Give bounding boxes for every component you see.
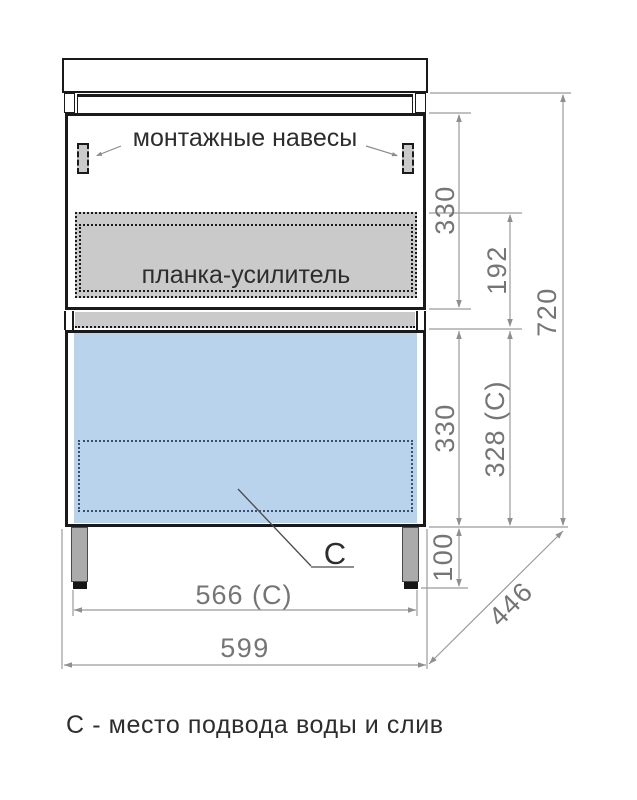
dim-overall-height: 720 bbox=[533, 242, 561, 382]
dimension-overlay bbox=[0, 0, 637, 800]
dim-plank-zone-height: 192 bbox=[483, 200, 511, 340]
dim-overall-width: 599 bbox=[165, 633, 325, 664]
vanity-dimension-diagram: монтажные навесы планка-усилитель С С - … bbox=[0, 0, 637, 800]
dim-lower-section-height-c: 328 (С) bbox=[481, 359, 509, 499]
legend-caption: С - место подвода воды и слив bbox=[66, 711, 444, 740]
connection-marker-label: С bbox=[312, 536, 358, 572]
reinforcement-plank-label: планка-усилитель bbox=[126, 261, 366, 290]
dim-connection-width-c: 566 (С) bbox=[144, 580, 344, 611]
dim-upper-section-height: 330 bbox=[431, 140, 459, 280]
mounting-brackets-label: монтажные навесы bbox=[120, 124, 370, 153]
dim-lower-section-height: 330 bbox=[431, 358, 459, 498]
dim-leg-height: 100 bbox=[429, 487, 457, 627]
